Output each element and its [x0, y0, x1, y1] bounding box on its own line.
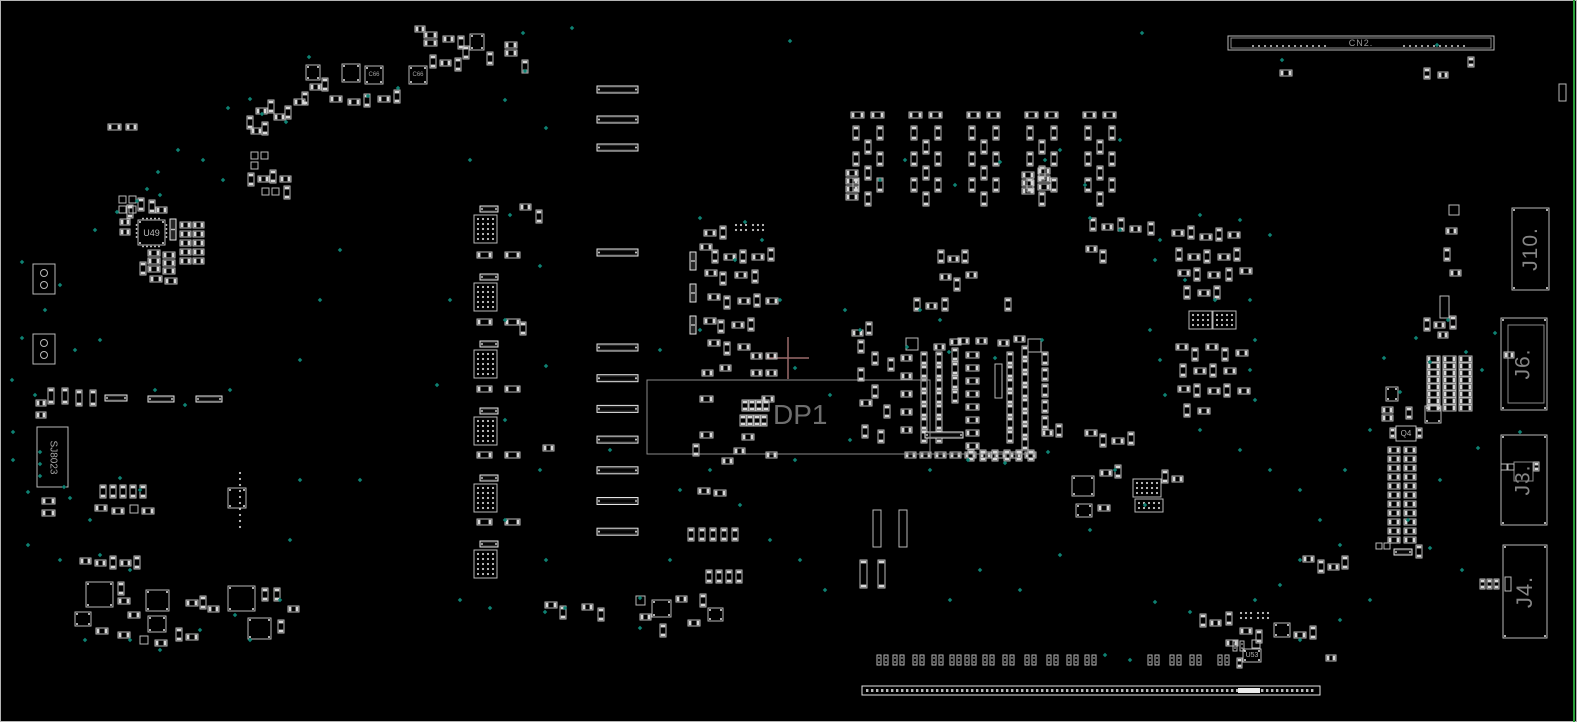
component-footprints [33, 26, 1566, 695]
connector-j6[interactable]: J6. [1501, 318, 1547, 410]
connector-j6-label: J6. [1512, 348, 1536, 379]
capacitor-c66-right[interactable]: C66 [409, 66, 427, 84]
connector-j3[interactable]: J3. [1501, 435, 1547, 525]
capacitor-c66-right-label: C66 [412, 72, 423, 78]
ic-u49-label: U49 [143, 228, 160, 238]
module-dp1-label: DP1 [773, 399, 827, 431]
via-testpoints [10, 26, 1523, 663]
connector-j4-label: J4. [1512, 575, 1538, 607]
component-sj8023-label: SJ8023 [47, 440, 58, 474]
pcb-board-view[interactable]: CN2. J10. J6. J3. J4. DP1 SJ8023 U49 U53… [0, 0, 1577, 722]
connector-j10-label: J10. [1519, 227, 1543, 271]
ic-u53[interactable]: U53 [1243, 649, 1261, 662]
transistor-q4-label: Q4 [1401, 429, 1412, 438]
capacitor-c66-left[interactable]: C66 [365, 66, 383, 84]
ic-u49[interactable]: U49 [138, 220, 165, 245]
connector-cn2[interactable]: CN2. [1228, 36, 1494, 50]
transistor-q4[interactable]: Q4 [1396, 426, 1416, 441]
connector-j10[interactable]: J10. [1512, 208, 1549, 290]
connector-cn2-label: CN2. [1349, 38, 1374, 48]
connector-j3-label: J3. [1512, 464, 1536, 495]
capacitor-c66-left-label: C66 [368, 72, 379, 78]
connector-j4[interactable]: J4. [1503, 545, 1547, 638]
board-graphics-layer [0, 0, 1577, 722]
ic-u53-label: U53 [1246, 652, 1259, 659]
module-dp1[interactable]: DP1 [773, 401, 843, 429]
component-sj8023[interactable]: SJ8023 [37, 427, 68, 487]
